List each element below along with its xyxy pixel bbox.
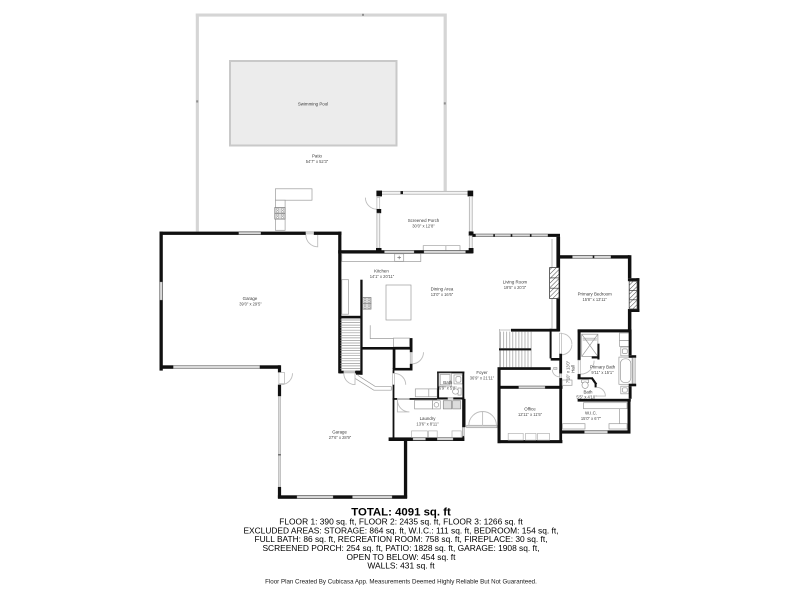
svg-text:39'0" x 29'5": 39'0" x 29'5" [239,302,262,307]
svg-text:14'1" x 20'11": 14'1" x 20'11" [370,274,395,279]
svg-text:15'0" x 6'7": 15'0" x 6'7" [581,416,602,421]
svg-text:Hall: Hall [571,365,576,373]
svg-text:54'7" x 52'3": 54'7" x 52'3" [306,159,329,164]
svg-text:Living Room: Living Room [503,280,528,285]
svg-text:13'0" x 16'6": 13'0" x 16'6" [431,292,454,297]
svg-text:13'6" x 8'11": 13'6" x 8'11" [416,421,439,426]
svg-text:15'8" x 13'11": 15'8" x 13'11" [582,297,607,302]
svg-text:Screened Porch: Screened Porch [408,218,440,223]
svg-text:Primary Bedroom: Primary Bedroom [578,292,613,297]
svg-text:Patio: Patio [312,154,323,159]
svg-text:WALLS: 431 sq. ft: WALLS: 431 sq. ft [367,561,435,571]
svg-text:Primary Bath: Primary Bath [590,365,616,370]
svg-text:19'5" x 20'3": 19'5" x 20'3" [504,285,527,290]
svg-text:Foyer: Foyer [476,370,488,375]
svg-text:W.I.C.: W.I.C. [585,411,597,416]
svg-text:30'0" x 12'8": 30'0" x 12'8" [412,224,435,229]
svg-text:Swimming Pool: Swimming Pool [298,102,328,107]
svg-text:9'11" x 15'1": 9'11" x 15'1" [591,370,614,375]
svg-text:Office: Office [524,407,536,412]
svg-text:12'11" x 11'5": 12'11" x 11'5" [518,412,543,417]
svg-text:27'6" x 28'9": 27'6" x 28'9" [329,435,352,440]
svg-text:6'9" x 5'8": 6'9" x 5'8" [439,385,457,390]
svg-text:36'9" x 21'11": 36'9" x 21'11" [470,376,495,381]
svg-text:Dining Area: Dining Area [431,287,454,292]
svg-text:Floor Plan Created By Cubicasa: Floor Plan Created By Cubicasa App. Meas… [265,579,537,586]
svg-text:Garage: Garage [243,296,258,301]
svg-text:7'10" x 13'0": 7'10" x 13'0" [565,360,570,383]
svg-text:Kitchen: Kitchen [374,269,389,274]
svg-text:Laundry: Laundry [420,416,437,421]
svg-text:Bath: Bath [443,380,453,385]
